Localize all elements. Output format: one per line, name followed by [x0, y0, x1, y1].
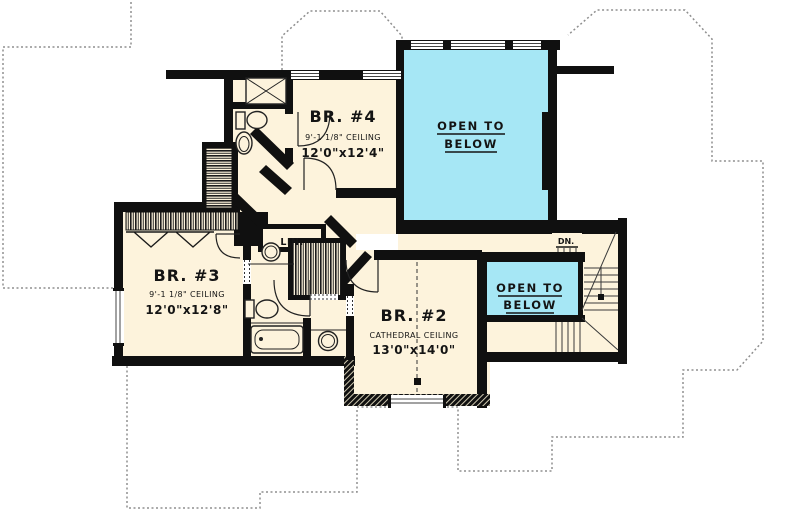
wall: [477, 352, 627, 362]
toilet-tank-hall: [245, 300, 254, 318]
br3-size: 12'0"x12'8": [145, 303, 228, 317]
br2-ceiling: CATHEDRAL CEILING: [369, 331, 458, 340]
stairs-dn-label: DN.: [558, 237, 574, 246]
wall: [556, 66, 614, 74]
wall: [477, 315, 585, 322]
window-br4-left: [288, 71, 322, 79]
wall: [166, 70, 232, 79]
floor-plan: DN. BR. #4 9'-1 1/8" C: [0, 0, 800, 513]
wall: [477, 252, 487, 408]
wall: [618, 218, 627, 364]
toilet-tank-top: [236, 112, 245, 129]
br3-ceiling: 9'-1 1/8" CEILING: [149, 290, 225, 299]
open-below-small-line1: OPEN TO: [496, 281, 564, 295]
window-br2-bay: [388, 395, 446, 408]
wall: [542, 112, 552, 190]
br4-closet-hatch: [206, 148, 232, 208]
open-to-below-large-area: [402, 48, 548, 224]
wall: [303, 318, 311, 362]
floor-plan-canvas: DN. BR. #4 9'-1 1/8" C: [0, 0, 800, 513]
stair-direction-arrowhead: [598, 294, 604, 300]
br2-name: BR. #2: [381, 306, 448, 325]
walkin-closet-hatch: [293, 243, 341, 295]
wall-hatched: [344, 356, 354, 400]
br4-ceiling: 9'-1 1/8" CEILING: [305, 133, 381, 142]
linen-closet-label: LIN.: [280, 237, 303, 248]
wall: [336, 188, 404, 198]
bathtub-drain: [259, 337, 263, 341]
wall: [112, 356, 355, 366]
toilet-bowl-top: [247, 112, 267, 129]
wall: [396, 220, 626, 234]
wall: [477, 252, 585, 262]
window-open-below-top: [404, 40, 548, 50]
wall: [224, 70, 233, 154]
br2-size: 13'0"x14'0": [372, 343, 455, 357]
open-below-large-line2: BELOW: [444, 137, 498, 151]
br3-name: BR. #3: [154, 266, 221, 285]
br3-closet-hatch: [126, 212, 238, 230]
toilet-bowl-hall: [256, 300, 278, 318]
sink-top-bath: [236, 132, 252, 154]
window-br4-right: [360, 71, 404, 79]
open-below-large-line1: OPEN TO: [437, 119, 505, 133]
window-br3-left: [113, 288, 124, 346]
br2-ridge-marker: [414, 378, 421, 385]
wall: [346, 284, 354, 360]
br4-name: BR. #4: [310, 107, 377, 126]
wall: [374, 250, 482, 260]
br4-size: 12'0"x12'4": [301, 146, 384, 160]
open-below-small-line2: BELOW: [503, 298, 557, 312]
